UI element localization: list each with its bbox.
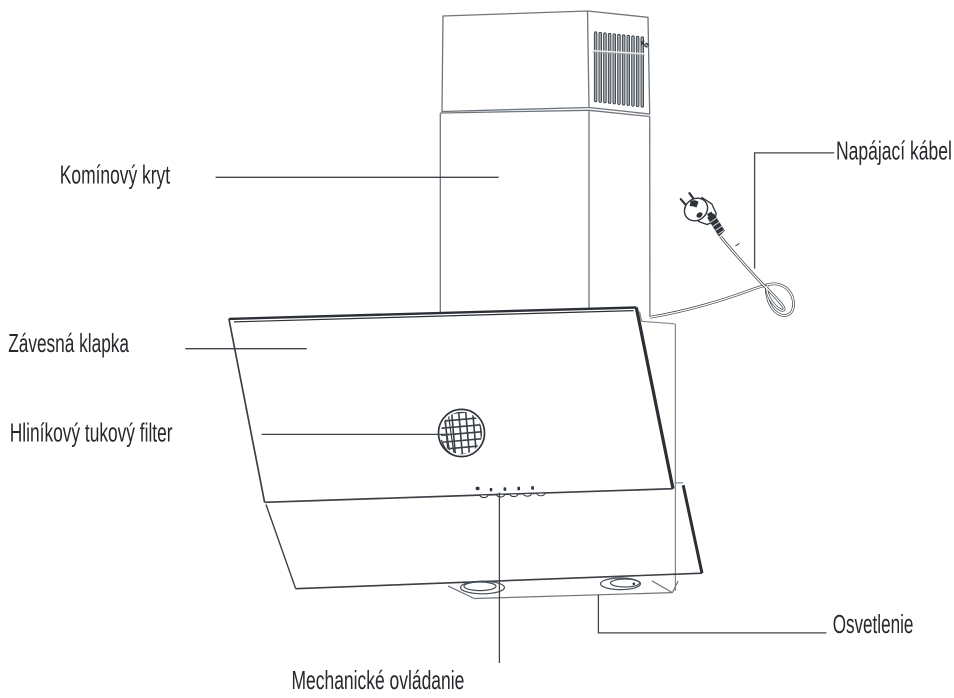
svg-text:Závesná klapka: Závesná klapka <box>8 328 129 357</box>
svg-text:Mechanické ovládanie: Mechanické ovládanie <box>292 666 465 695</box>
svg-text:Komínový kryt: Komínový kryt <box>60 160 170 189</box>
svg-text:Napájací kábel: Napájací kábel <box>836 136 952 165</box>
svg-text:Osvetlenie: Osvetlenie <box>833 609 914 639</box>
svg-text:Hliníkový tukový filter: Hliníkový tukový filter <box>10 418 173 447</box>
